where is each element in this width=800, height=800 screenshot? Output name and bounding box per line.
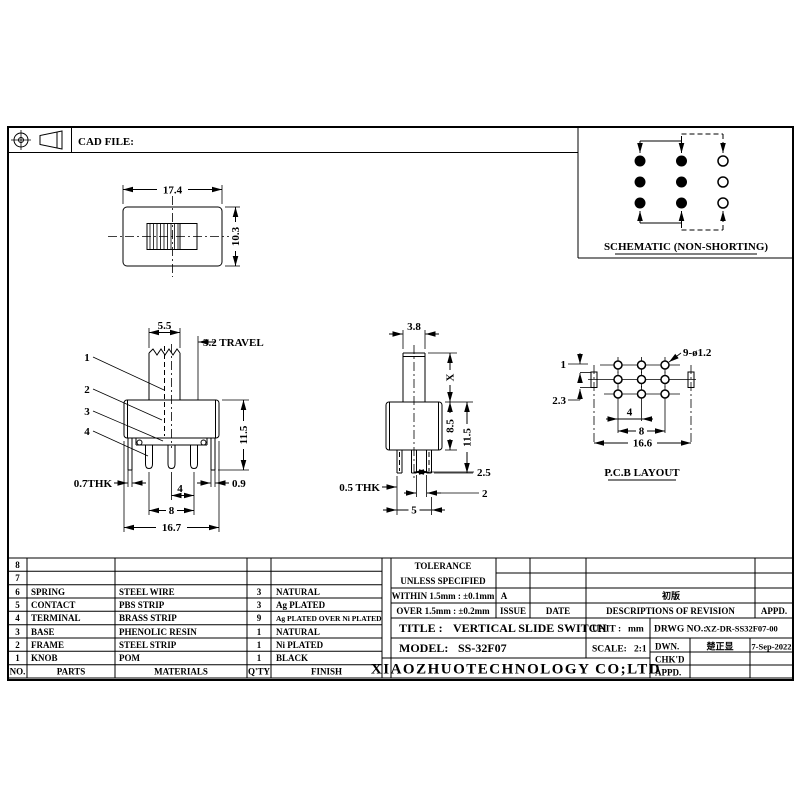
date-label: DATE — [546, 606, 570, 616]
row3-finish: NATURAL — [276, 627, 320, 637]
drwg-no-value: XZ-DR-SS32F07-00 — [705, 624, 778, 634]
header-finish: FINISH — [311, 667, 342, 677]
side-leg-gap-dim: 2 — [482, 488, 488, 500]
row6-qty: 3 — [257, 587, 262, 597]
dwn-date: 7-Sep-2022 — [751, 642, 791, 652]
front-travel-dim: 3.2 TRAVEL — [203, 337, 264, 349]
scale-value: 2:1 — [634, 645, 647, 655]
callout-1: 1 — [84, 352, 90, 364]
row1-part: KNOB — [31, 653, 58, 663]
revision-description: 初版 — [662, 590, 680, 601]
parts-table-header: NO. PARTS MATERIALS Q'TY FINISH — [10, 667, 342, 677]
row6-finish: NATURAL — [276, 587, 320, 597]
pcb-holes-dim: 9-ø1.2 — [683, 347, 712, 359]
pcb-top-dim: 1 — [561, 359, 567, 371]
tolerance-subtitle: UNLESS SPECIFIED — [400, 576, 486, 586]
schematic-view: SCHEMATIC (NON-SHORTING) — [578, 127, 793, 258]
side-view: 3.8 X 8.5 11.5 2.5 2 5 — [339, 321, 491, 517]
issue-label: ISSUE — [500, 606, 526, 616]
row5-part: CONTACT — [31, 600, 75, 610]
pcb-pitch-dim: 4 — [627, 407, 633, 419]
row5-finish: Ag PLATED — [276, 600, 326, 610]
header-materials: MATERIALS — [154, 667, 208, 677]
front-thk-dim: 0.7THK — [74, 478, 113, 490]
side-body-height-dim: 8.5 — [445, 419, 457, 433]
side-leg-span-dim: 5 — [411, 505, 417, 517]
header-qty: Q'TY — [248, 667, 271, 677]
row5-qty: 3 — [257, 600, 262, 610]
title-label: TITLE : — [399, 621, 443, 635]
top-view-width-dim: 17.4 — [163, 185, 183, 197]
cad-file-label: CAD FILE: — [78, 136, 134, 148]
row6-part: SPRING — [31, 587, 65, 597]
model-value: SS-32F07 — [458, 641, 507, 655]
row6-no: 6 — [15, 587, 20, 597]
drwg-no-label: DRWG NO.: — [654, 625, 706, 635]
drawing-sheet: CAD FILE: SCHEMATIC (NON-SHORTING) — [0, 0, 800, 800]
row4-part: TERMINAL — [31, 613, 81, 623]
schematic-title: SCHEMATIC (NON-SHORTING) — [604, 241, 768, 253]
row3-qty: 1 — [257, 627, 262, 637]
row4-no: 4 — [15, 613, 20, 623]
company-name: XIAOZHUOTECHNOLOGY CO;LTD — [371, 662, 661, 678]
dwn-label: DWN. — [655, 642, 679, 652]
unit-value: mm — [628, 625, 644, 635]
row4-finish: Ag PLATED OVER Ni PLATED — [276, 614, 382, 623]
row3-part: BASE — [31, 627, 55, 637]
row2-part: FRAME — [31, 640, 64, 650]
front-span-dim: 8 — [169, 505, 175, 517]
side-height-dim: 11.5 — [462, 428, 474, 447]
row3-material: PHENOLIC RESIN — [119, 627, 197, 637]
row5-no: 5 — [15, 600, 20, 610]
callout-2: 2 — [84, 384, 90, 396]
row4-material: BRASS STRIP — [119, 613, 177, 623]
dwn-name: 楚正显 — [705, 641, 733, 652]
issue-value: A — [501, 591, 508, 601]
side-thk-dim: 0.5 THK — [339, 482, 380, 494]
header-parts: PARTS — [57, 667, 86, 677]
title-value: VERTICAL SLIDE SWITCH — [453, 621, 607, 635]
row8-no: 8 — [15, 560, 20, 570]
front-end-gap-dim: 0.9 — [232, 478, 246, 490]
top-view-height-dim: 10.3 — [230, 226, 242, 246]
front-height-dim: 11.5 — [238, 425, 250, 444]
row2-finish: Ni PLATED — [276, 640, 324, 650]
tolerance-over: OVER 1.5mm : ±0.2mm — [396, 606, 490, 616]
row2-qty: 1 — [257, 640, 262, 650]
callout-4: 4 — [84, 426, 90, 438]
row5-material: PBS STRIP — [119, 600, 165, 610]
side-knob-width-dim: 3.8 — [407, 321, 421, 333]
front-pitch-dim: 4 — [177, 483, 183, 495]
side-knob-height-dim: X — [445, 373, 457, 381]
projection-symbol-icon — [11, 130, 62, 150]
tolerance-title: TOLERANCE — [415, 561, 472, 571]
appd-column-label: APPD. — [761, 606, 787, 616]
descriptions-label: DESCRIPTIONS OF REVISION — [606, 606, 735, 616]
row1-qty: 1 — [257, 653, 262, 663]
front-knob-width-dim: 5.5 — [158, 320, 172, 332]
row7-no: 7 — [15, 573, 20, 583]
front-view: 3.2 TRAVEL 5.5 1 2 3 4 — [74, 320, 264, 534]
row1-no: 1 — [15, 653, 20, 663]
row2-no: 2 — [15, 640, 20, 650]
row6-material: STEEL WIRE — [119, 587, 175, 597]
tolerance-within: WITHIN 1.5mm : ±0.1mm — [392, 591, 495, 601]
pcb-layout-title: P.C.B LAYOUT — [604, 467, 680, 479]
header-no: NO. — [10, 667, 26, 677]
top-view: 17.4 10.3 — [108, 184, 242, 278]
pcb-span-dim: 8 — [639, 426, 645, 438]
row1-material: POM — [119, 653, 140, 663]
row2-material: STEEL STRIP — [119, 640, 177, 650]
row3-no: 3 — [15, 627, 20, 637]
row1-finish: BLACK — [276, 653, 308, 663]
row4-qty: 9 — [257, 613, 262, 623]
callout-3: 3 — [84, 406, 90, 418]
model-label: MODEL: — [399, 641, 448, 655]
pcb-layout: 9-ø1.2 1 2.3 4 8 16.6 P.C.B LAYOUT — [552, 347, 712, 480]
unit-label: UNIT : — [592, 625, 621, 635]
pcb-total-dim: 16.6 — [633, 438, 653, 450]
title-block: TOLERANCE UNLESS SPECIFIED WITHIN 1.5mm … — [371, 558, 793, 678]
scale-label: SCALE: — [592, 645, 627, 655]
pcb-side-dim: 2.3 — [552, 395, 566, 407]
cad-drawing-canvas: CAD FILE: SCHEMATIC (NON-SHORTING) — [0, 0, 800, 800]
front-total-width-dim: 16.7 — [162, 522, 182, 534]
side-leg-offset-dim: 2.5 — [477, 467, 491, 479]
